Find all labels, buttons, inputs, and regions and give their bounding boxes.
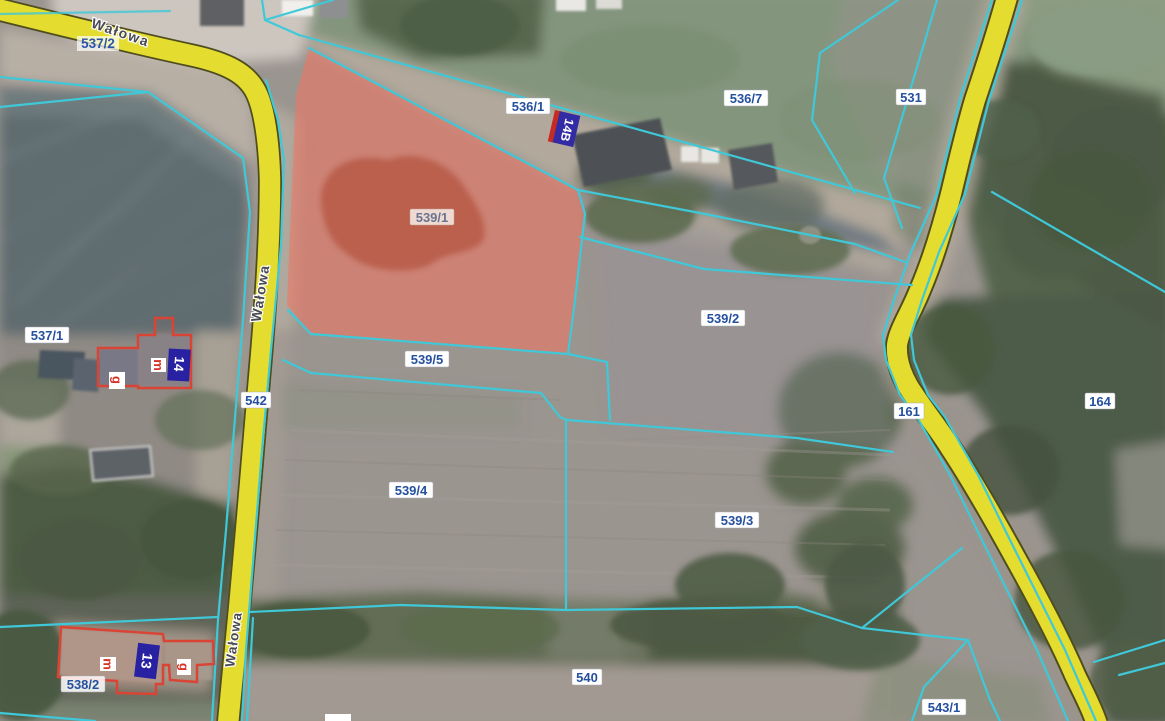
svg-text:161: 161 xyxy=(898,404,920,419)
svg-text:536/1: 536/1 xyxy=(512,99,545,114)
svg-text:m: m xyxy=(151,359,166,371)
svg-text:539/4: 539/4 xyxy=(395,483,428,498)
svg-text:m: m xyxy=(101,658,116,670)
svg-text:164: 164 xyxy=(1089,394,1111,409)
svg-text:531: 531 xyxy=(900,90,922,105)
svg-text:539/2: 539/2 xyxy=(707,311,740,326)
svg-text:g: g xyxy=(110,376,125,384)
svg-text:536/7: 536/7 xyxy=(730,91,763,106)
svg-text:537/2: 537/2 xyxy=(81,36,115,51)
svg-text:539/3: 539/3 xyxy=(721,513,754,528)
svg-text:538/2: 538/2 xyxy=(67,677,100,692)
svg-text:542: 542 xyxy=(245,393,267,408)
svg-text:539/5: 539/5 xyxy=(411,352,444,367)
svg-text:13: 13 xyxy=(138,652,156,670)
svg-text:g: g xyxy=(177,663,192,671)
svg-text:537/1: 537/1 xyxy=(31,328,64,343)
svg-text:14: 14 xyxy=(171,356,187,373)
svg-text:539/1: 539/1 xyxy=(416,210,449,225)
svg-text:540: 540 xyxy=(576,670,598,685)
svg-text:543/1: 543/1 xyxy=(928,700,961,715)
